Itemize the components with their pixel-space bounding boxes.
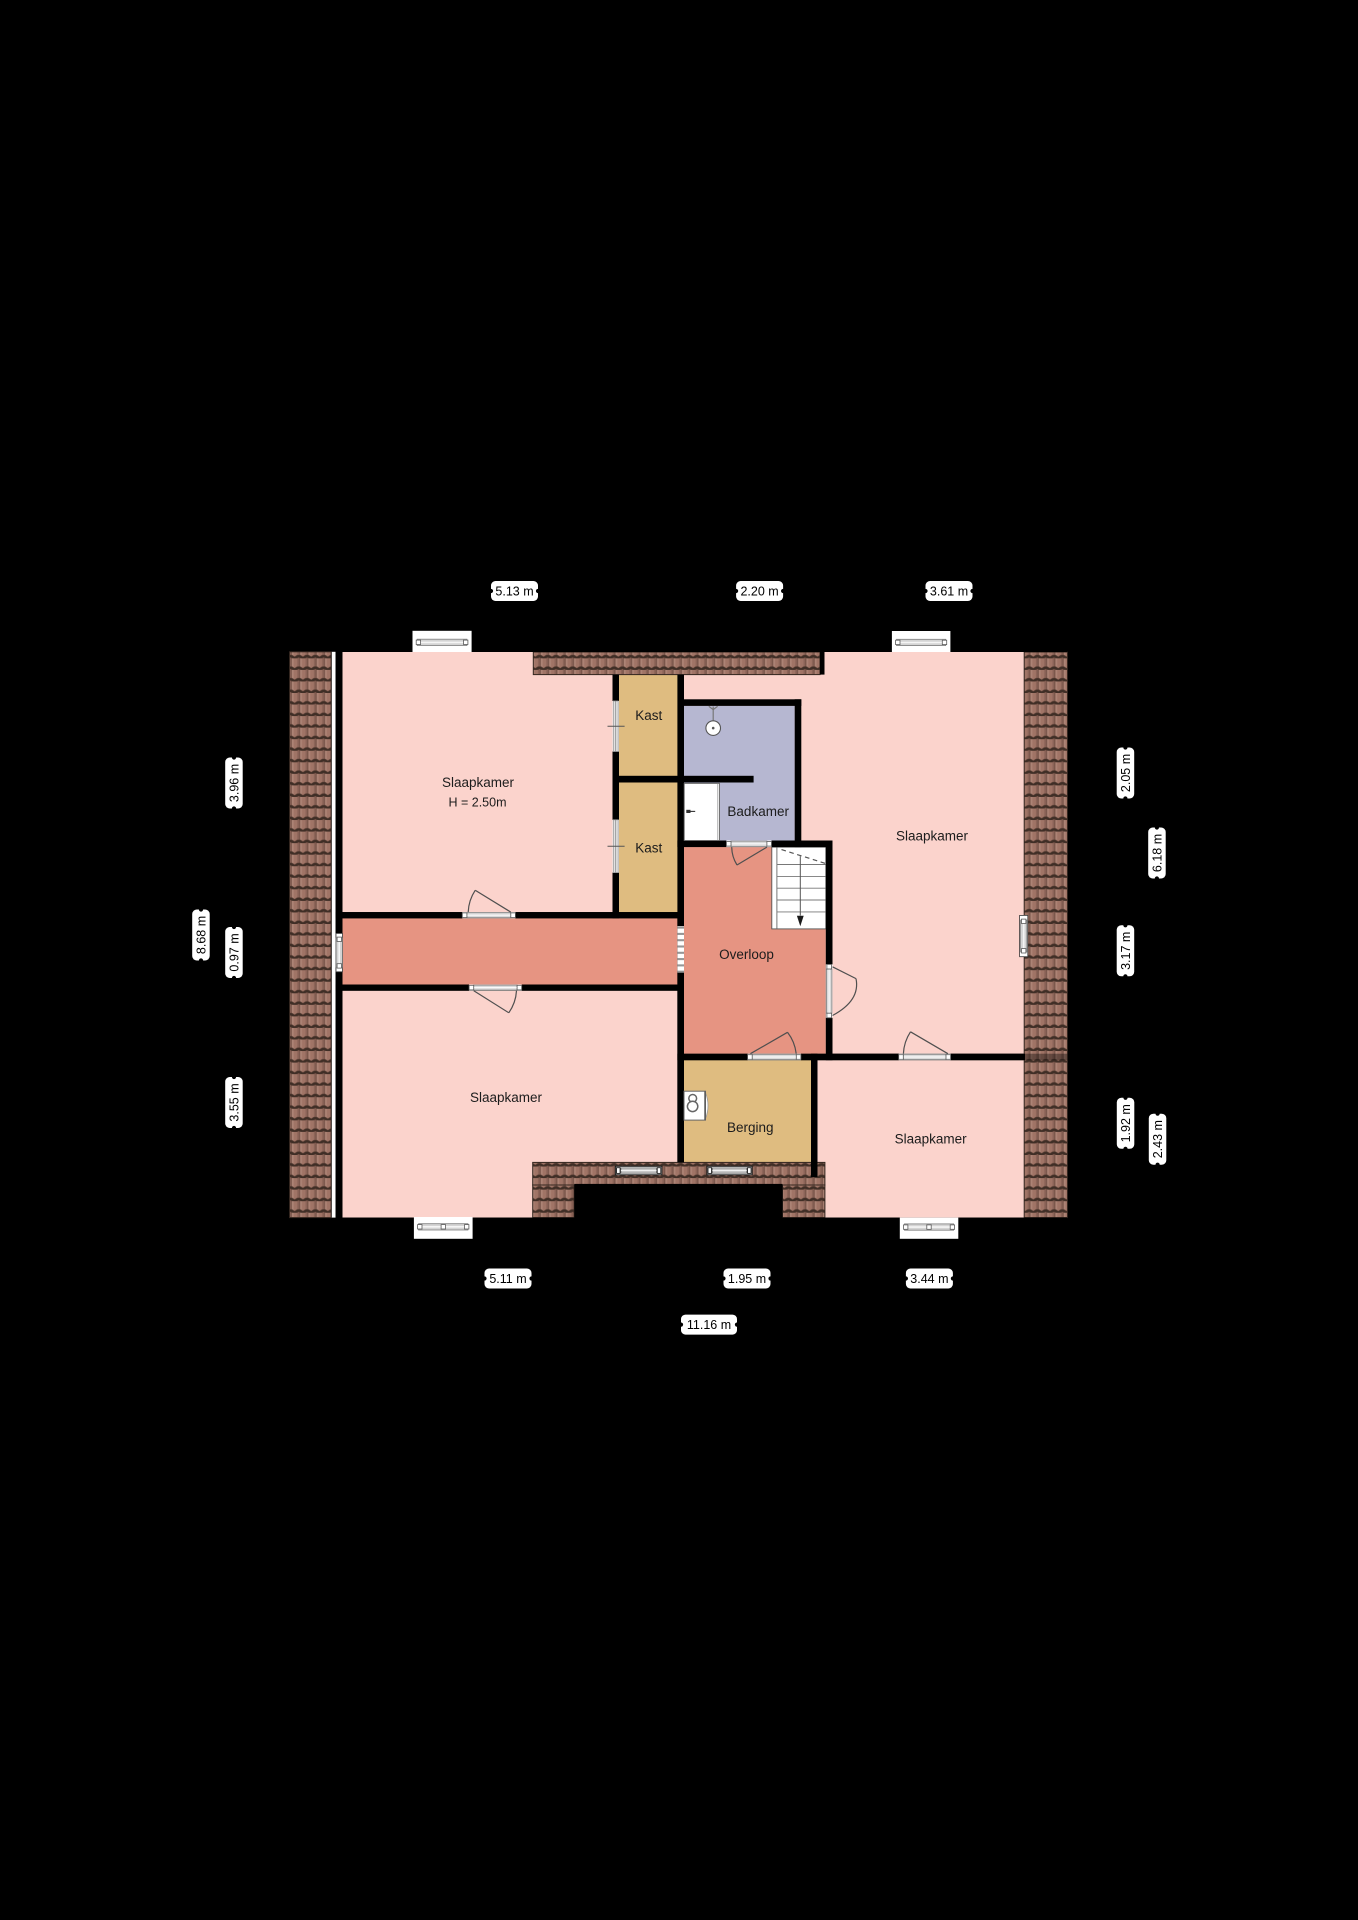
svg-text:3.96 m: 3.96 m bbox=[227, 764, 241, 802]
svg-text:Berging: Berging bbox=[727, 1120, 774, 1135]
svg-text:11.16 m: 11.16 m bbox=[687, 1318, 731, 1332]
svg-text:1.92 m: 1.92 m bbox=[1119, 1104, 1133, 1142]
svg-text:H = 2.50m: H = 2.50m bbox=[448, 796, 506, 810]
svg-text:Kast: Kast bbox=[635, 841, 662, 856]
svg-text:2.05 m: 2.05 m bbox=[1119, 754, 1133, 792]
svg-text:Kast: Kast bbox=[635, 708, 662, 723]
svg-text:Badkamer: Badkamer bbox=[727, 804, 789, 819]
svg-text:Slaapkamer: Slaapkamer bbox=[470, 1090, 543, 1105]
svg-text:5.11 m: 5.11 m bbox=[489, 1272, 526, 1286]
svg-text:0.97 m: 0.97 m bbox=[227, 933, 241, 971]
svg-text:3.17 m: 3.17 m bbox=[1119, 932, 1133, 970]
svg-text:Overloop: Overloop bbox=[719, 947, 774, 962]
svg-text:2.43 m: 2.43 m bbox=[1151, 1120, 1165, 1158]
svg-text:3.55 m: 3.55 m bbox=[227, 1083, 241, 1121]
svg-text:6.18 m: 6.18 m bbox=[1150, 834, 1164, 872]
svg-text:Slaapkamer: Slaapkamer bbox=[896, 829, 969, 844]
svg-text:2.20 m: 2.20 m bbox=[740, 584, 778, 598]
svg-text:5.13 m: 5.13 m bbox=[495, 584, 533, 598]
svg-text:Slaapkamer: Slaapkamer bbox=[895, 1131, 968, 1146]
svg-text:8.68 m: 8.68 m bbox=[194, 916, 208, 954]
svg-text:1.95 m: 1.95 m bbox=[728, 1272, 766, 1286]
svg-text:3.61 m: 3.61 m bbox=[930, 584, 968, 598]
svg-text:Slaapkamer: Slaapkamer bbox=[442, 775, 515, 790]
svg-text:3.44 m: 3.44 m bbox=[910, 1272, 948, 1286]
